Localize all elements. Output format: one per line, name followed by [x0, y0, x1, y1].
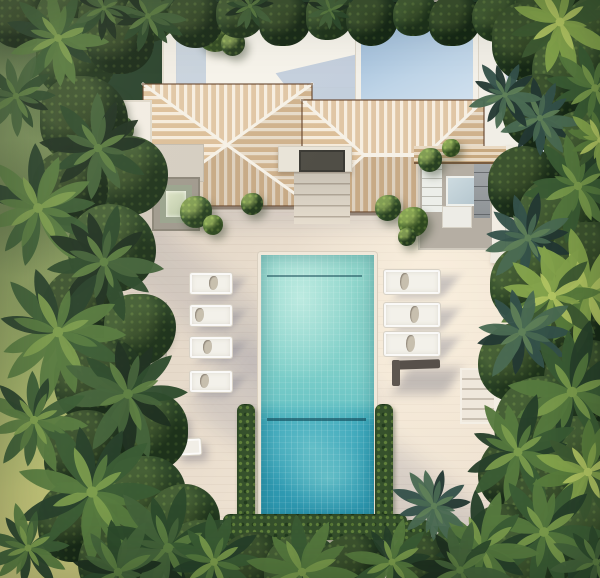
foliage-clump	[86, 6, 154, 74]
villa-aerial-scene	[0, 0, 600, 578]
towel	[400, 273, 409, 290]
sun-lounger	[383, 331, 441, 357]
pool-shallow-step-line	[267, 275, 362, 277]
towel	[200, 374, 209, 388]
sun-lounger	[383, 269, 441, 295]
foliage-clump	[167, 0, 223, 48]
towel	[406, 335, 415, 352]
entry-steps	[294, 172, 350, 224]
towel	[195, 308, 204, 322]
towel	[203, 340, 212, 354]
sun-lounger	[189, 304, 233, 327]
towel	[410, 306, 419, 323]
sun-lounger	[189, 336, 233, 359]
poolside-bench-leg	[392, 360, 400, 386]
entry-door-recess	[299, 150, 345, 172]
pool-depth-change-line	[267, 418, 366, 421]
kitchen-island	[442, 206, 472, 228]
sun-lounger	[189, 370, 233, 393]
kitchen-table	[446, 176, 476, 206]
sun-lounger	[383, 302, 441, 328]
towel	[209, 276, 218, 290]
swimming-pool	[258, 252, 377, 524]
sun-lounger	[189, 272, 233, 295]
